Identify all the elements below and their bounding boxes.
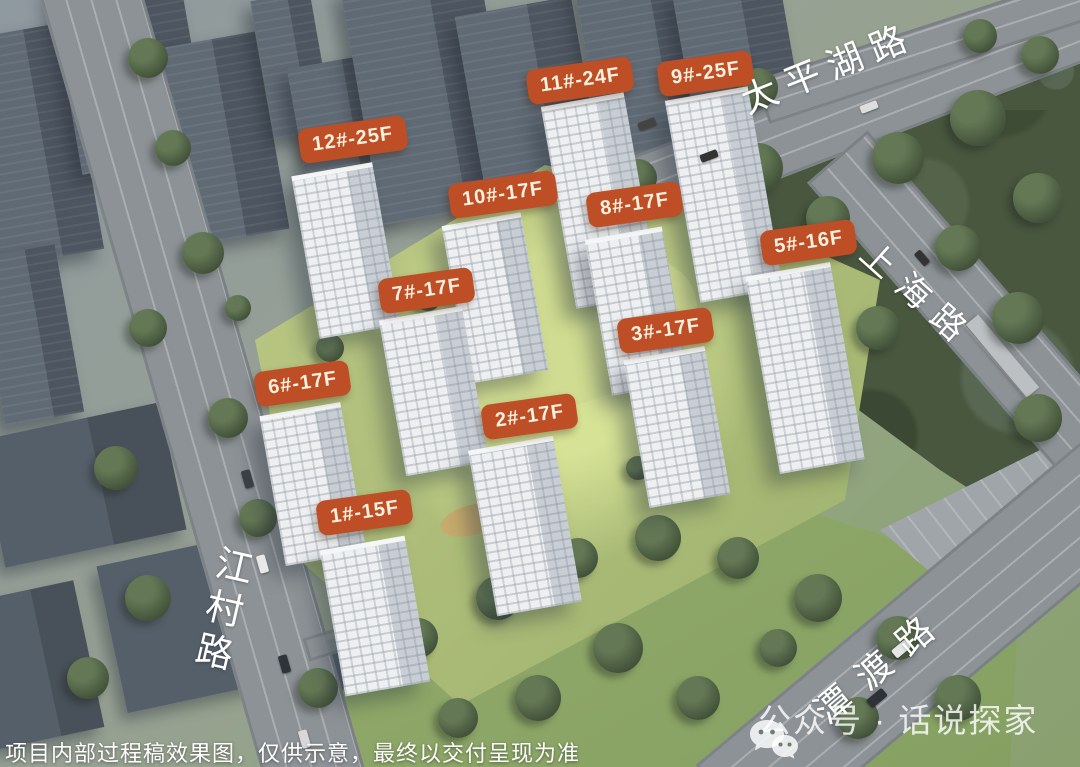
car [699, 149, 719, 163]
watermark: 公众号 · 话说探家 [748, 694, 1038, 742]
aerial-render-image: 12#-25F 11#-24F 9#-25F 10#-17F 8#-17F 5#… [0, 0, 1080, 767]
car [637, 117, 657, 131]
disclaimer-text: 项目内部过程稿效果图，仅供示意，最终以交付呈现为准 [5, 736, 580, 767]
watermark-text: 公众号 · 话说探家 [758, 694, 1038, 742]
car [241, 469, 255, 489]
car [278, 654, 292, 674]
car [859, 100, 879, 114]
